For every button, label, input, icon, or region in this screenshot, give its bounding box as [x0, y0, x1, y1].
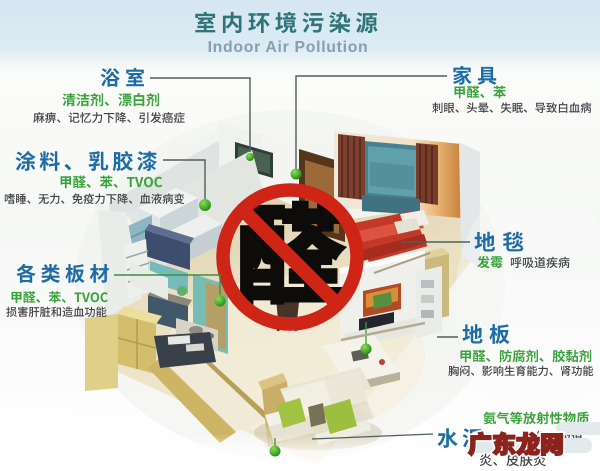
svg-text:Indoor Air Pollution: Indoor Air Pollution — [208, 39, 369, 56]
